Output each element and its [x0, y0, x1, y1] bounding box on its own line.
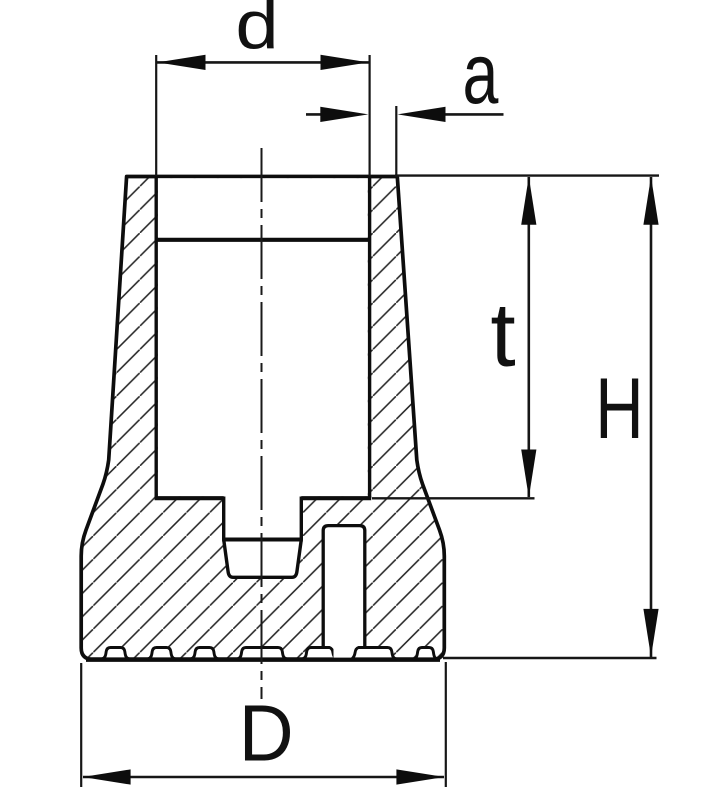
svg-text:t: t — [490, 285, 515, 386]
svg-text:a: a — [463, 26, 499, 122]
svg-text:d: d — [235, 0, 278, 63]
svg-text:D: D — [239, 688, 294, 778]
svg-text:H: H — [595, 361, 643, 457]
